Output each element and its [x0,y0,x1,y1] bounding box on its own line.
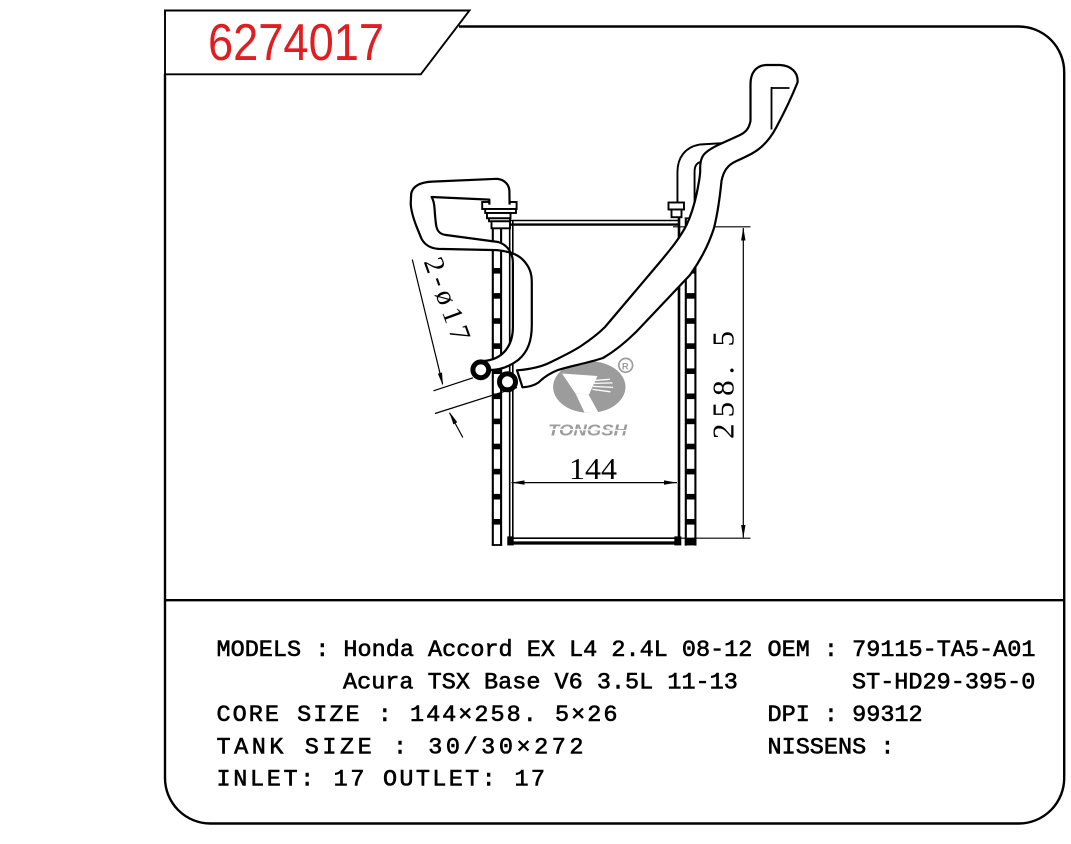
svg-text:ST-HD29-395-0: ST-HD29-395-0 [852,670,1035,697]
svg-text:DPI : 99312: DPI : 99312 [768,702,923,729]
svg-text:NISSENS :: NISSENS : [768,735,895,762]
svg-text:INLET: 17: INLET: 17 [217,767,365,794]
svg-text:Acura TSX Base V6 3.5L 11-13: Acura TSX Base V6 3.5L 11-13 [343,670,738,697]
svg-text:OEM : 79115-TA5-A01: OEM : 79115-TA5-A01 [768,637,1036,664]
svg-text:MODELS : Honda Accord EX L4 2.: MODELS : Honda Accord EX L4 2.4L 08-12 [217,637,753,664]
svg-text:R: R [622,362,629,372]
svg-text:6274017: 6274017 [208,13,384,71]
svg-text:144: 144 [569,451,618,486]
svg-text:CORE SIZE : 144×258. 5×26: CORE SIZE : 144×258. 5×26 [217,702,618,729]
svg-text:TANK SIZE : 30/30×272: TANK SIZE : 30/30×272 [217,735,584,762]
